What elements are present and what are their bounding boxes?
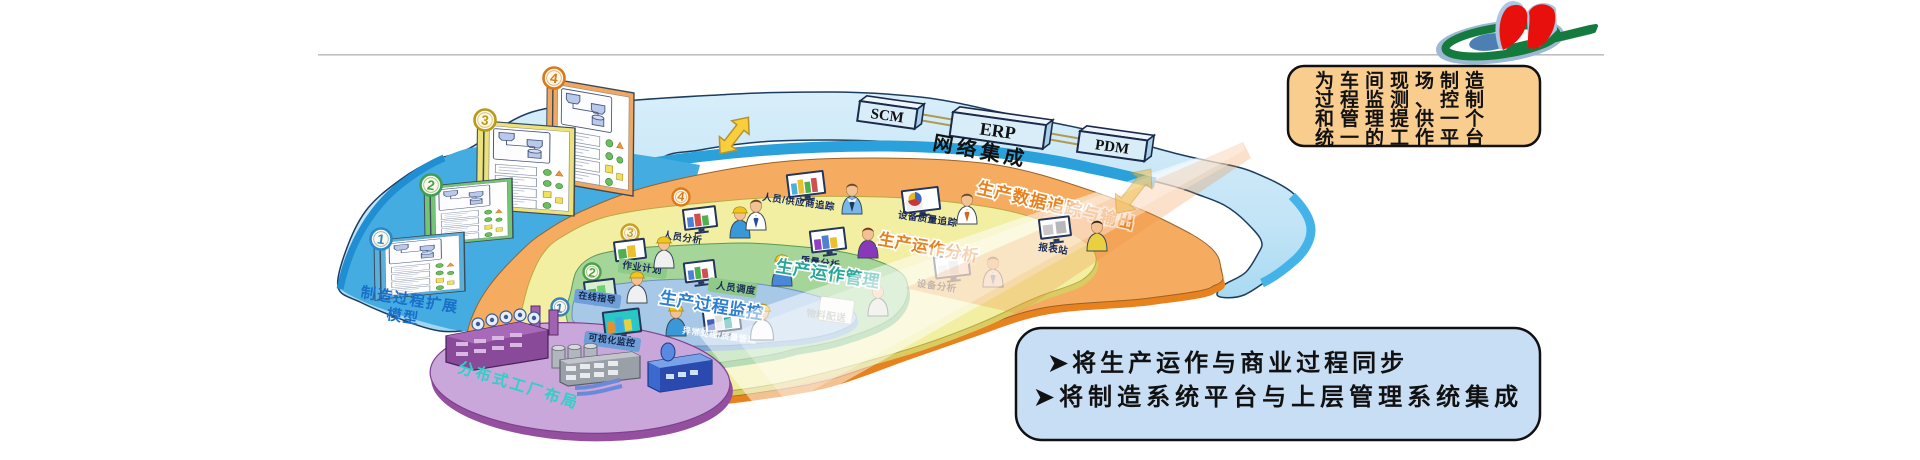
svg-text:过程监测、控制: 过程监测、控制: [1315, 88, 1490, 111]
svg-text:和管理提供一个: 和管理提供一个: [1315, 107, 1490, 130]
svg-text:➤将生产运作与商业过程同步: ➤将生产运作与商业过程同步: [1048, 349, 1408, 377]
svg-text:➤将制造系统平台与上层管理系统集成: ➤将制造系统平台与上层管理系统集成: [1034, 383, 1523, 411]
svg-text:为车间现场制造: 为车间现场制造: [1315, 69, 1490, 92]
svg-text:统一的工作平台: 统一的工作平台: [1315, 126, 1490, 149]
